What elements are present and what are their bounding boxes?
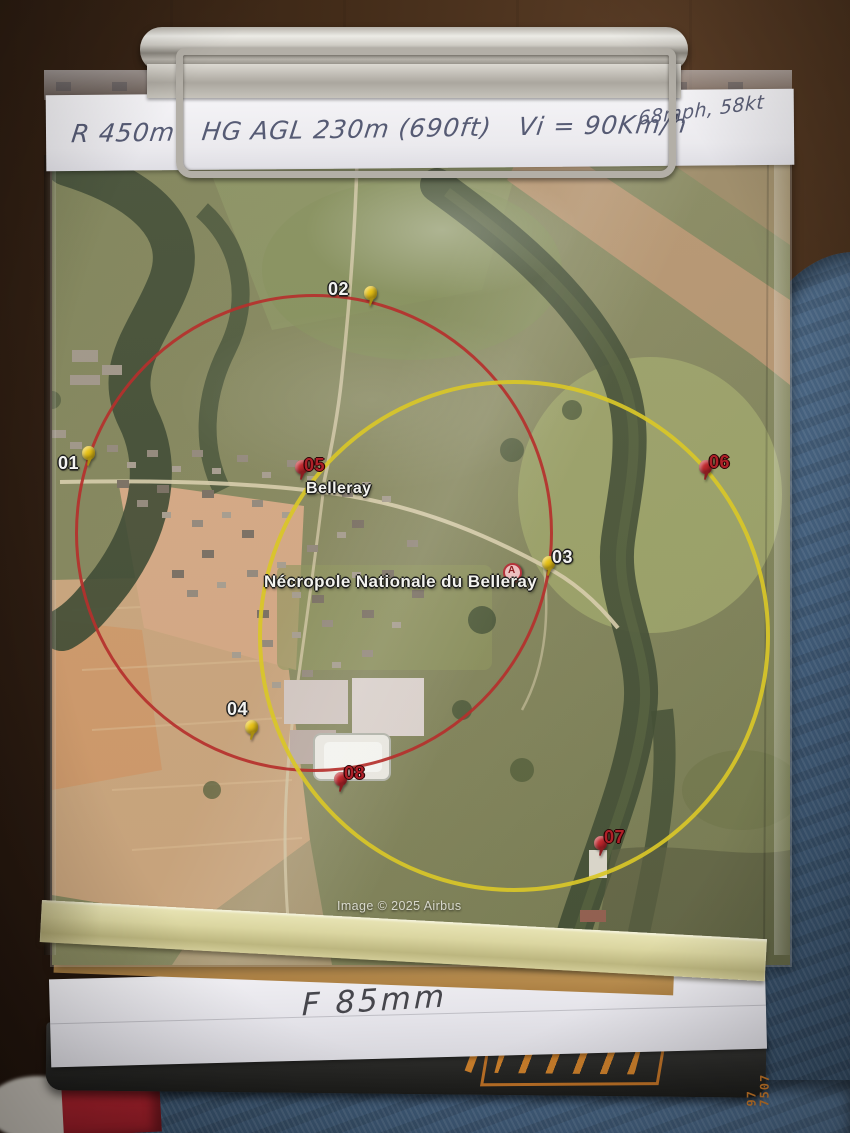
plastic-sleeve-right-edge <box>774 155 790 955</box>
case-serial-bottom: 7507 <box>759 1074 772 1107</box>
case-serial-numbers: 97 7507 <box>746 1074 772 1107</box>
top-note-paper: R 450m HG AGL 230m (690ft) Vi = 90Km/h 6… <box>46 89 795 172</box>
flight-parameters-note: R 450m HG AGL 230m (690ft) Vi = 90Km/h <box>70 110 689 149</box>
plastic-sleeve-left-edge <box>44 155 56 955</box>
aerial-map-print <box>52 150 790 965</box>
clipboard-photo: 97 7507 F 85mm <box>0 0 850 1133</box>
aerial-imagery <box>52 150 790 965</box>
speed-conversion-note: 68mph, 58kt <box>638 91 765 130</box>
